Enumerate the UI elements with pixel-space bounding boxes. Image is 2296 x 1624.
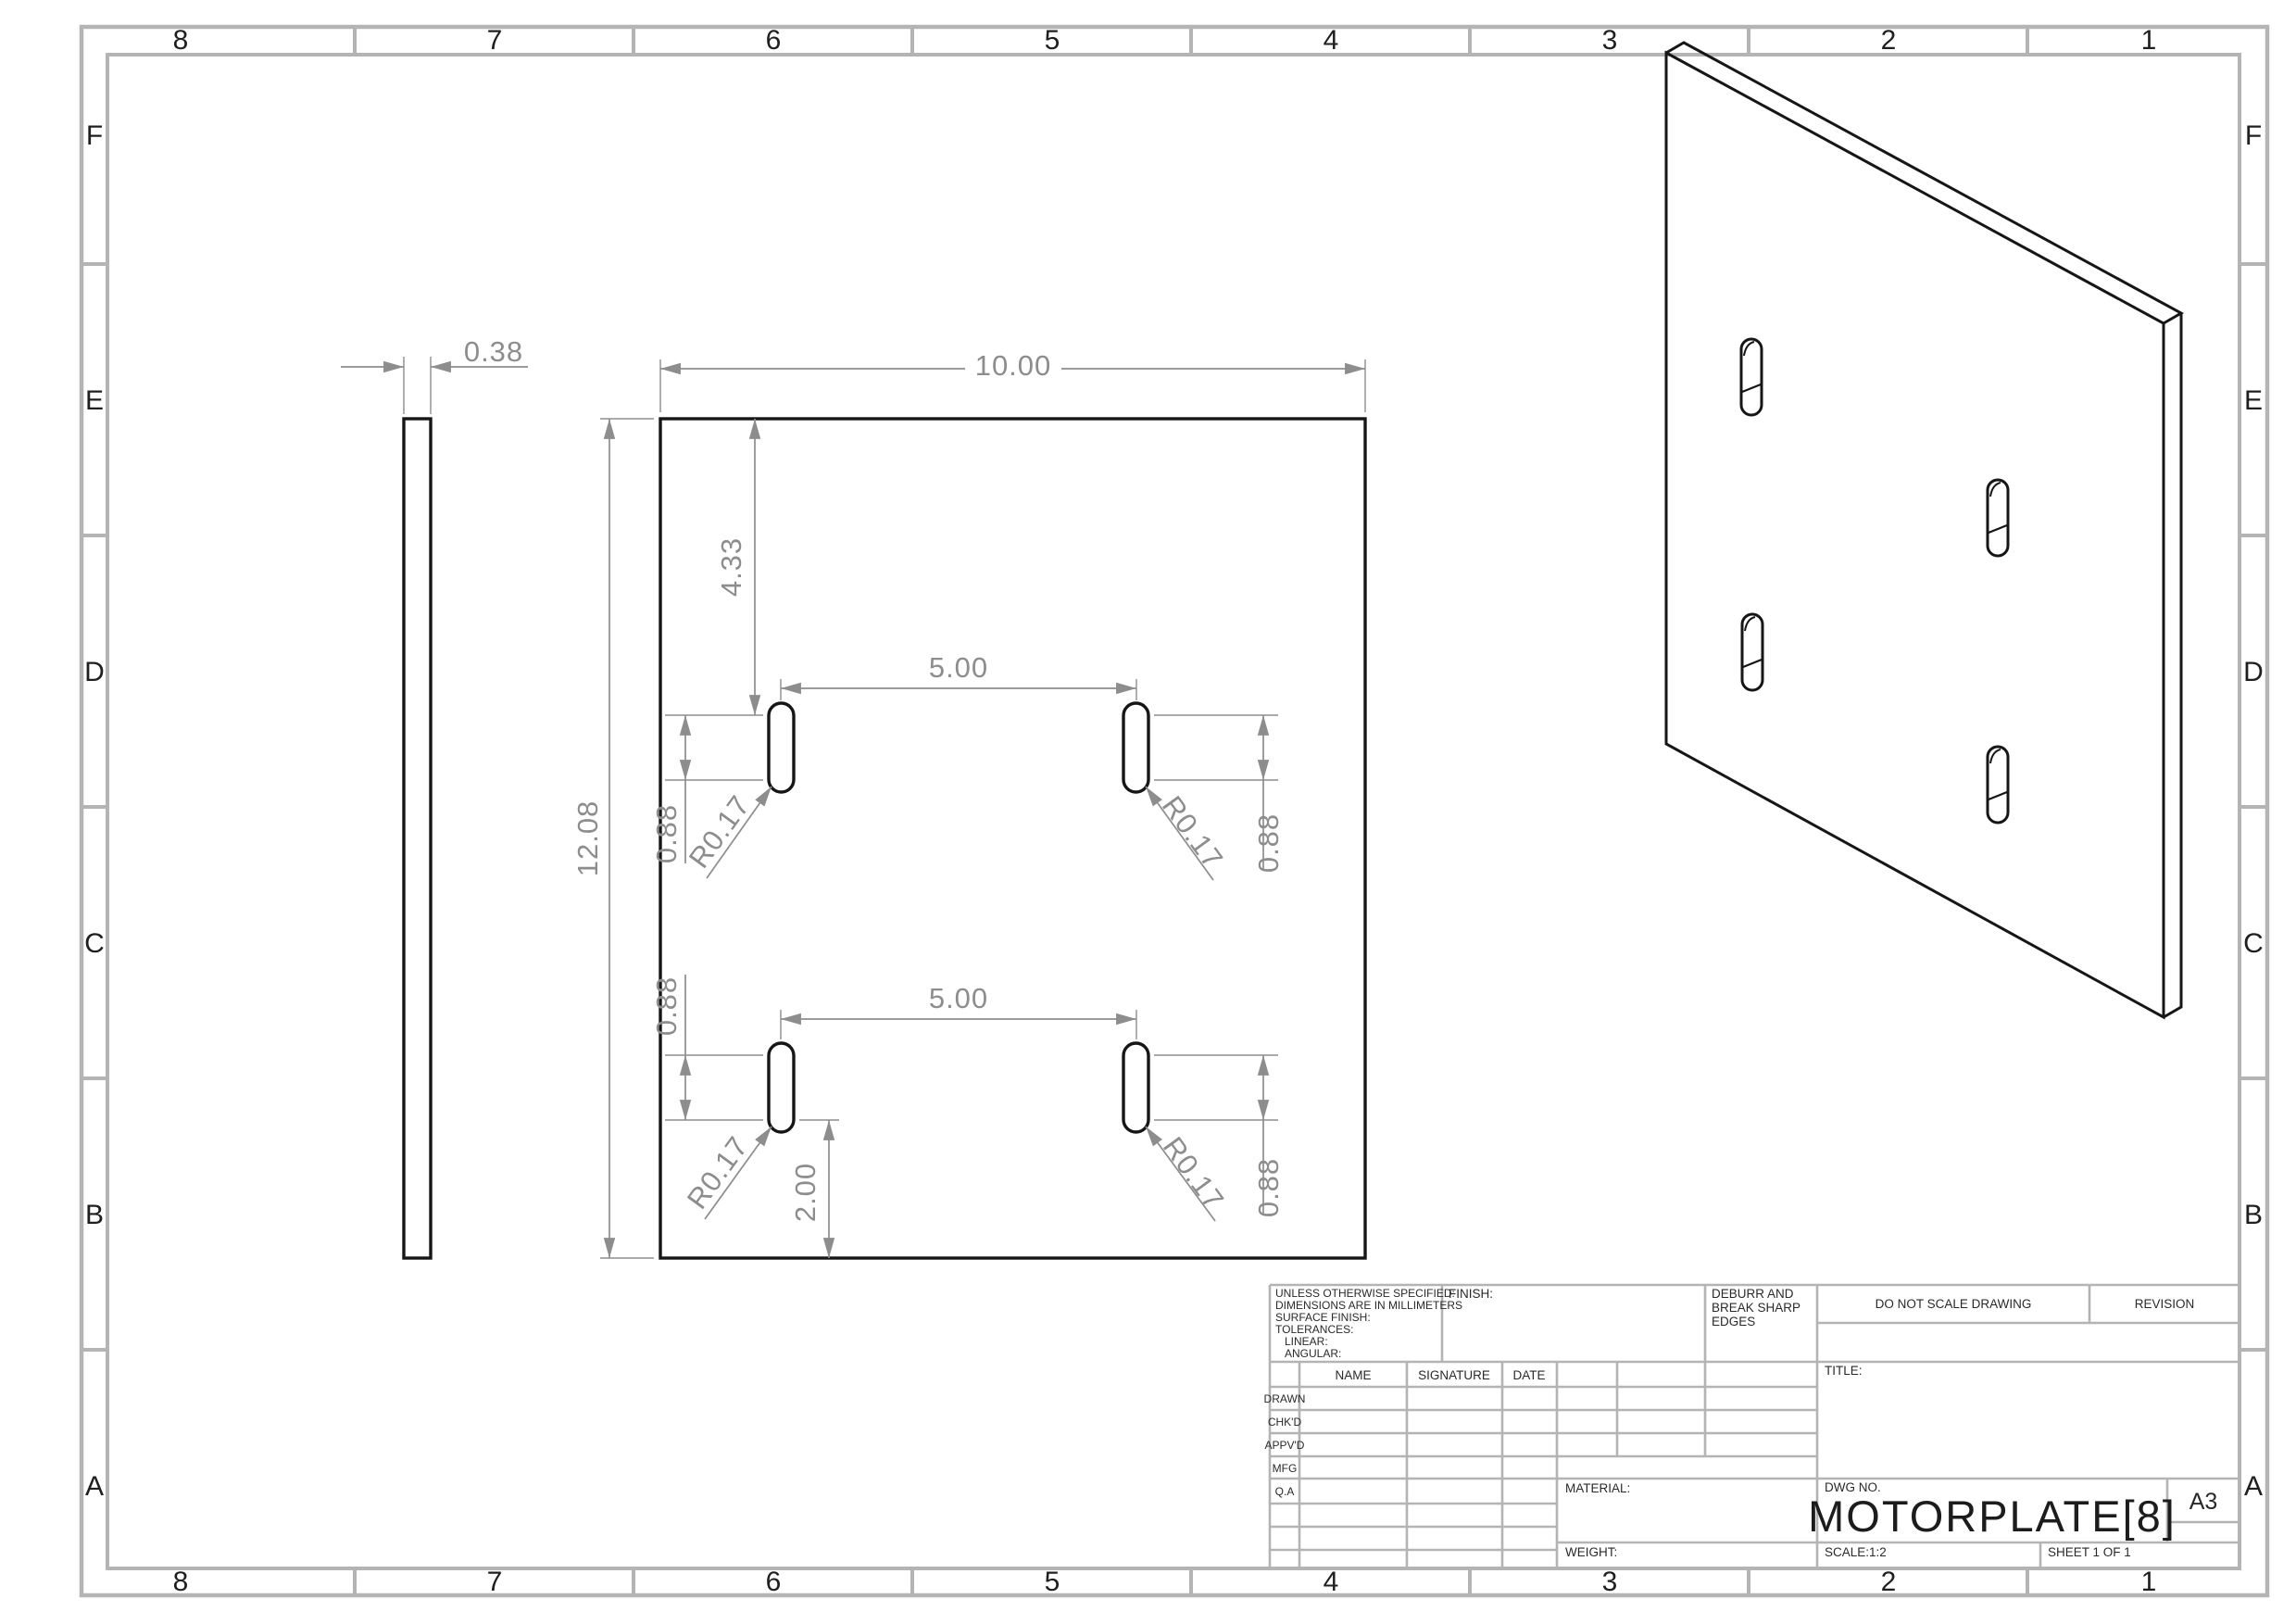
dim-bottom-offset-text: 2.00 (789, 1163, 822, 1222)
zone-row-label: D (2243, 657, 2264, 687)
slot-upper-right (1123, 703, 1148, 792)
title-label: TITLE: (1825, 1364, 1863, 1378)
tolerance-line: UNLESS OTHERWISE SPECIFIED: (1275, 1287, 1455, 1300)
front-view: 10.00 12.08 4.33 5.00 0.88 (571, 349, 1365, 1258)
dim-width: 10.00 (660, 349, 1365, 412)
dim-radius-lr-text: R0.17 (1157, 1131, 1231, 1216)
zone-row-label: E (85, 385, 104, 416)
zone-col-label: 7 (487, 1567, 503, 1597)
iso-front-face (1666, 53, 2164, 1017)
zone-row-label: E (2244, 385, 2263, 416)
zone-col-label: 5 (1045, 1567, 1060, 1597)
zone-col-label: 1 (2141, 25, 2157, 56)
dim-slot-len-lr-text: 0.88 (1252, 1158, 1285, 1217)
dim-thickness: 0.38 (341, 335, 528, 414)
zone-row-label: C (84, 928, 105, 959)
paper-size-label: A3 (2189, 1489, 2218, 1515)
deburr-line: DEBURR AND (1712, 1287, 1794, 1301)
dim-radius-lower-left: R0.17 (681, 1127, 772, 1219)
slot-lower-left (769, 1043, 794, 1132)
zone-col-label: 2 (1881, 25, 1897, 56)
dim-slot-pitch-top: 5.00 (781, 651, 1136, 700)
zone-col-label: 5 (1045, 25, 1060, 56)
zone-row-label: A (85, 1471, 104, 1502)
zone-row-label: C (2243, 928, 2264, 959)
dim-thickness-text: 0.38 (464, 335, 523, 368)
title-block: UNLESS OTHERWISE SPECIFIED: DIMENSIONS A… (1264, 1285, 2240, 1568)
deburr-line: EDGES (1712, 1315, 1755, 1328)
revision-label: REVISION (2135, 1297, 2195, 1311)
engineering-drawing-sheet: 8 7 6 5 4 3 2 1 8 7 6 5 4 3 2 1 F E D C … (0, 0, 2296, 1624)
dim-slot-len-ur-text: 0.88 (1252, 813, 1285, 873)
weight-label: WEIGHT: (1565, 1545, 1617, 1559)
iso-top-face (1666, 43, 2181, 323)
side-view: 0.38 (341, 335, 528, 1258)
side-view-outline (404, 419, 431, 1258)
zone-col-label: 8 (173, 1567, 189, 1597)
col-header-date: DATE (1512, 1368, 1545, 1382)
do-not-scale-label: DO NOT SCALE DRAWING (1876, 1297, 2032, 1311)
dim-radius-upper-left: R0.17 (683, 787, 772, 878)
zone-row-label: F (86, 120, 103, 151)
tolerance-line: LINEAR: (1285, 1335, 1328, 1348)
dim-slot-len-lower-left: 0.88 (650, 975, 763, 1120)
zone-row-label: B (2244, 1200, 2263, 1230)
zone-row-label: B (85, 1200, 104, 1230)
dim-slot-len-ll-text: 0.88 (650, 976, 683, 1036)
dim-bottom-offset: 2.00 (789, 1120, 839, 1258)
dwg-no-value: MOTORPLATE[8] (1808, 1492, 2177, 1541)
dim-radius-lower-right: R0.17 (1146, 1127, 1231, 1221)
deburr-line: BREAK SHARP (1712, 1301, 1800, 1315)
zone-col-label: 3 (1602, 1567, 1618, 1597)
scale-label: SCALE:1:2 (1825, 1545, 1887, 1559)
zone-row-label: A (2244, 1471, 2263, 1502)
dim-width-text: 10.00 (975, 349, 1052, 382)
dim-slot-pitch-bottom: 5.00 (781, 982, 1136, 1039)
dim-slot-pitch-top-text: 5.00 (929, 651, 988, 684)
isometric-view (1666, 43, 2181, 1017)
row-label-chkd: CHK'D (1268, 1416, 1302, 1429)
iso-right-face (2164, 313, 2181, 1017)
zone-col-label: 6 (766, 25, 782, 56)
zone-col-label: 8 (173, 25, 189, 56)
zone-col-label: 3 (1602, 25, 1618, 56)
row-label-appvd: APPV'D (1265, 1439, 1305, 1452)
zone-col-label: 2 (1881, 1567, 1897, 1597)
row-label-drawn: DRAWN (1264, 1392, 1306, 1405)
iso-slot-2 (1988, 480, 2008, 556)
zone-col-label: 1 (2141, 1567, 2157, 1597)
dim-radius-upper-right: R0.17 (1146, 787, 1230, 880)
iso-slots (1741, 339, 2008, 823)
finish-label: FINISH: (1449, 1287, 1493, 1301)
material-label: MATERIAL: (1565, 1481, 1630, 1495)
deburr-note: DEBURR AND BREAK SHARP EDGES (1712, 1287, 1800, 1328)
slot-lower-right (1123, 1043, 1148, 1132)
zone-col-label: 6 (766, 1567, 782, 1597)
dim-height-text: 12.08 (571, 800, 604, 877)
tolerance-line: TOLERANCES: (1275, 1323, 1353, 1336)
dim-height: 12.08 (571, 419, 654, 1258)
zone-col-label: 7 (487, 25, 503, 56)
iso-slot-3 (1742, 614, 1763, 690)
zone-row-label: F (2245, 120, 2262, 151)
iso-slot-4 (1988, 747, 2008, 823)
col-header-signature: SIGNATURE (1418, 1368, 1490, 1382)
row-label-mfg: MFG (1273, 1462, 1298, 1475)
col-header-name: NAME (1335, 1368, 1371, 1382)
dim-top-offset-text: 4.33 (715, 537, 747, 597)
dim-slot-pitch-bottom-text: 5.00 (929, 982, 988, 1014)
zone-col-label: 4 (1324, 25, 1339, 56)
tolerance-note: UNLESS OTHERWISE SPECIFIED: DIMENSIONS A… (1275, 1287, 1462, 1360)
sheet-label: SHEET 1 OF 1 (2048, 1545, 2131, 1559)
dim-radius-ur-text: R0.17 (1156, 790, 1230, 875)
slot-upper-left (769, 703, 794, 792)
zone-row-label: D (84, 657, 105, 687)
tolerance-line: DIMENSIONS ARE IN MILLIMETERS (1275, 1299, 1462, 1312)
tolerance-line: SURFACE FINISH: (1275, 1311, 1371, 1324)
tolerance-line: ANGULAR: (1285, 1347, 1341, 1360)
row-label-qa: Q.A (1275, 1485, 1295, 1498)
dim-slot-len-ul-text: 0.88 (650, 804, 683, 863)
dim-top-offset: 4.33 (715, 419, 755, 715)
iso-slot-1 (1741, 339, 1762, 415)
zone-col-label: 4 (1324, 1567, 1339, 1597)
